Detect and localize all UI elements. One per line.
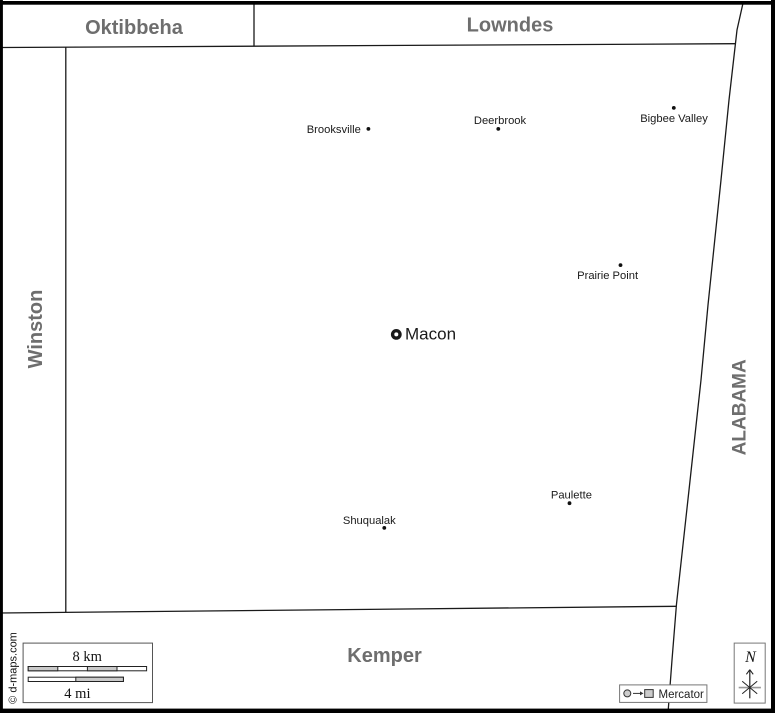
svg-text:Kemper: Kemper xyxy=(347,645,422,667)
svg-text:Bigbee Valley: Bigbee Valley xyxy=(640,113,708,125)
svg-text:Lowndes: Lowndes xyxy=(467,15,554,37)
svg-text:Brooksville: Brooksville xyxy=(307,124,361,136)
svg-text:© d-maps.com: © d-maps.com xyxy=(7,632,19,704)
svg-text:ALABAMA: ALABAMA xyxy=(729,359,750,455)
svg-text:Deerbrook: Deerbrook xyxy=(474,115,527,127)
svg-text:4 mi: 4 mi xyxy=(64,686,90,702)
svg-text:8 km: 8 km xyxy=(72,649,102,665)
svg-text:Shuqualak: Shuqualak xyxy=(343,515,396,527)
svg-text:Paulette: Paulette xyxy=(551,490,592,502)
svg-text:Macon: Macon xyxy=(405,325,456,344)
svg-text:Prairie Point: Prairie Point xyxy=(577,270,639,282)
svg-text:Mercator: Mercator xyxy=(659,689,705,701)
svg-text:N: N xyxy=(744,649,757,666)
svg-text:Oktibbeha: Oktibbeha xyxy=(85,17,184,39)
svg-text:Winston: Winston xyxy=(25,290,47,369)
